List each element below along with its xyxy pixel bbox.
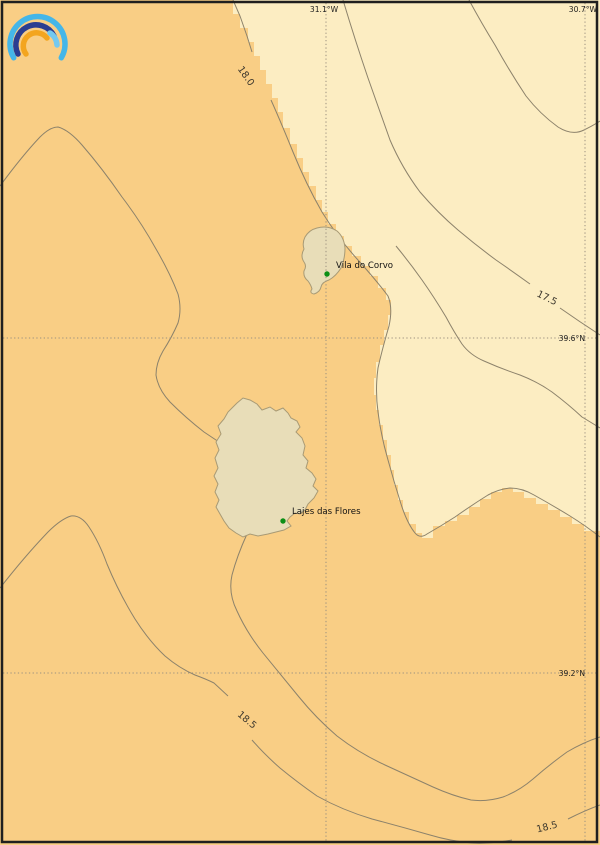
meridian-label-30-7w: 30.7°W <box>569 5 598 14</box>
map-canvas: Vila do Corvo Lajes das Flores 18.0 17.5… <box>0 0 600 845</box>
parallel-label-39-2n: 39.2°N <box>559 669 585 678</box>
parallel-label-39-6n: 39.6°N <box>559 334 585 343</box>
town-marker-vila-do-corvo <box>324 271 329 276</box>
place-label-lajes-das-flores: Lajes das Flores <box>292 507 361 517</box>
town-marker-lajes-das-flores <box>280 518 285 523</box>
map-window: Vila do Corvo Lajes das Flores 18.0 17.5… <box>0 0 600 845</box>
meridian-label-31-1w: 31.1°W <box>310 5 339 14</box>
place-label-vila-do-corvo: Vila do Corvo <box>336 261 393 271</box>
